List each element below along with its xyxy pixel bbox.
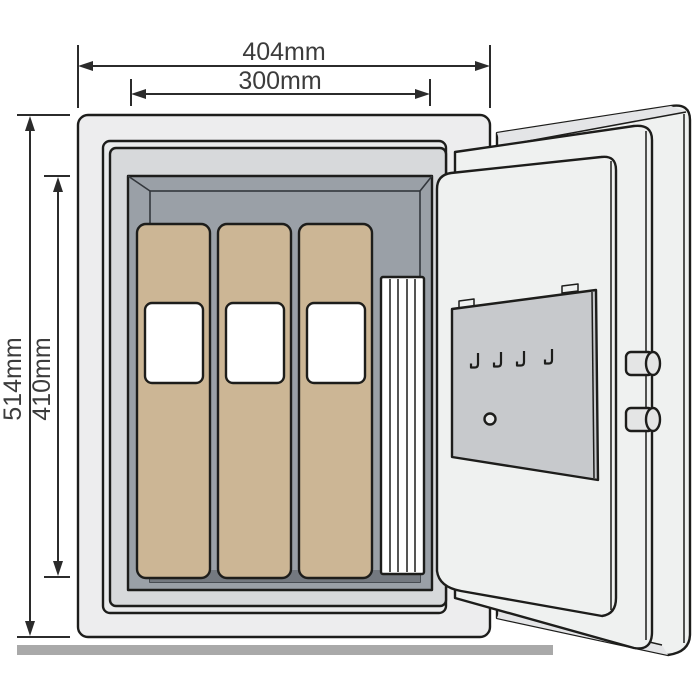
binder bbox=[299, 224, 372, 578]
safe-door bbox=[437, 106, 690, 655]
dimension-label-outer-height: 514mm bbox=[0, 337, 27, 420]
dimension-label-inner-width: 300mm bbox=[238, 67, 321, 95]
diagram-canvas: 404mm 300mm 514mm 410mm bbox=[0, 0, 700, 700]
binder-label-window bbox=[226, 303, 284, 383]
dimension-label-outer-width: 404mm bbox=[242, 38, 325, 66]
key-rack-panel bbox=[452, 284, 598, 480]
binder-label-window bbox=[145, 303, 203, 383]
binder-label-window bbox=[307, 303, 365, 383]
dimension-inner-height: 410mm bbox=[28, 176, 70, 577]
locking-bolt bbox=[626, 408, 660, 431]
safe-dimension-diagram: 404mm 300mm 514mm 410mm bbox=[0, 0, 700, 700]
document-stack bbox=[381, 277, 424, 574]
floor-line bbox=[17, 645, 553, 655]
binder bbox=[137, 224, 210, 578]
mounting-hole bbox=[485, 414, 496, 425]
dimension-inner-width: 300mm bbox=[131, 67, 430, 106]
dimension-label-inner-height: 410mm bbox=[28, 337, 56, 420]
locking-bolt bbox=[626, 352, 660, 375]
binder bbox=[218, 224, 291, 578]
